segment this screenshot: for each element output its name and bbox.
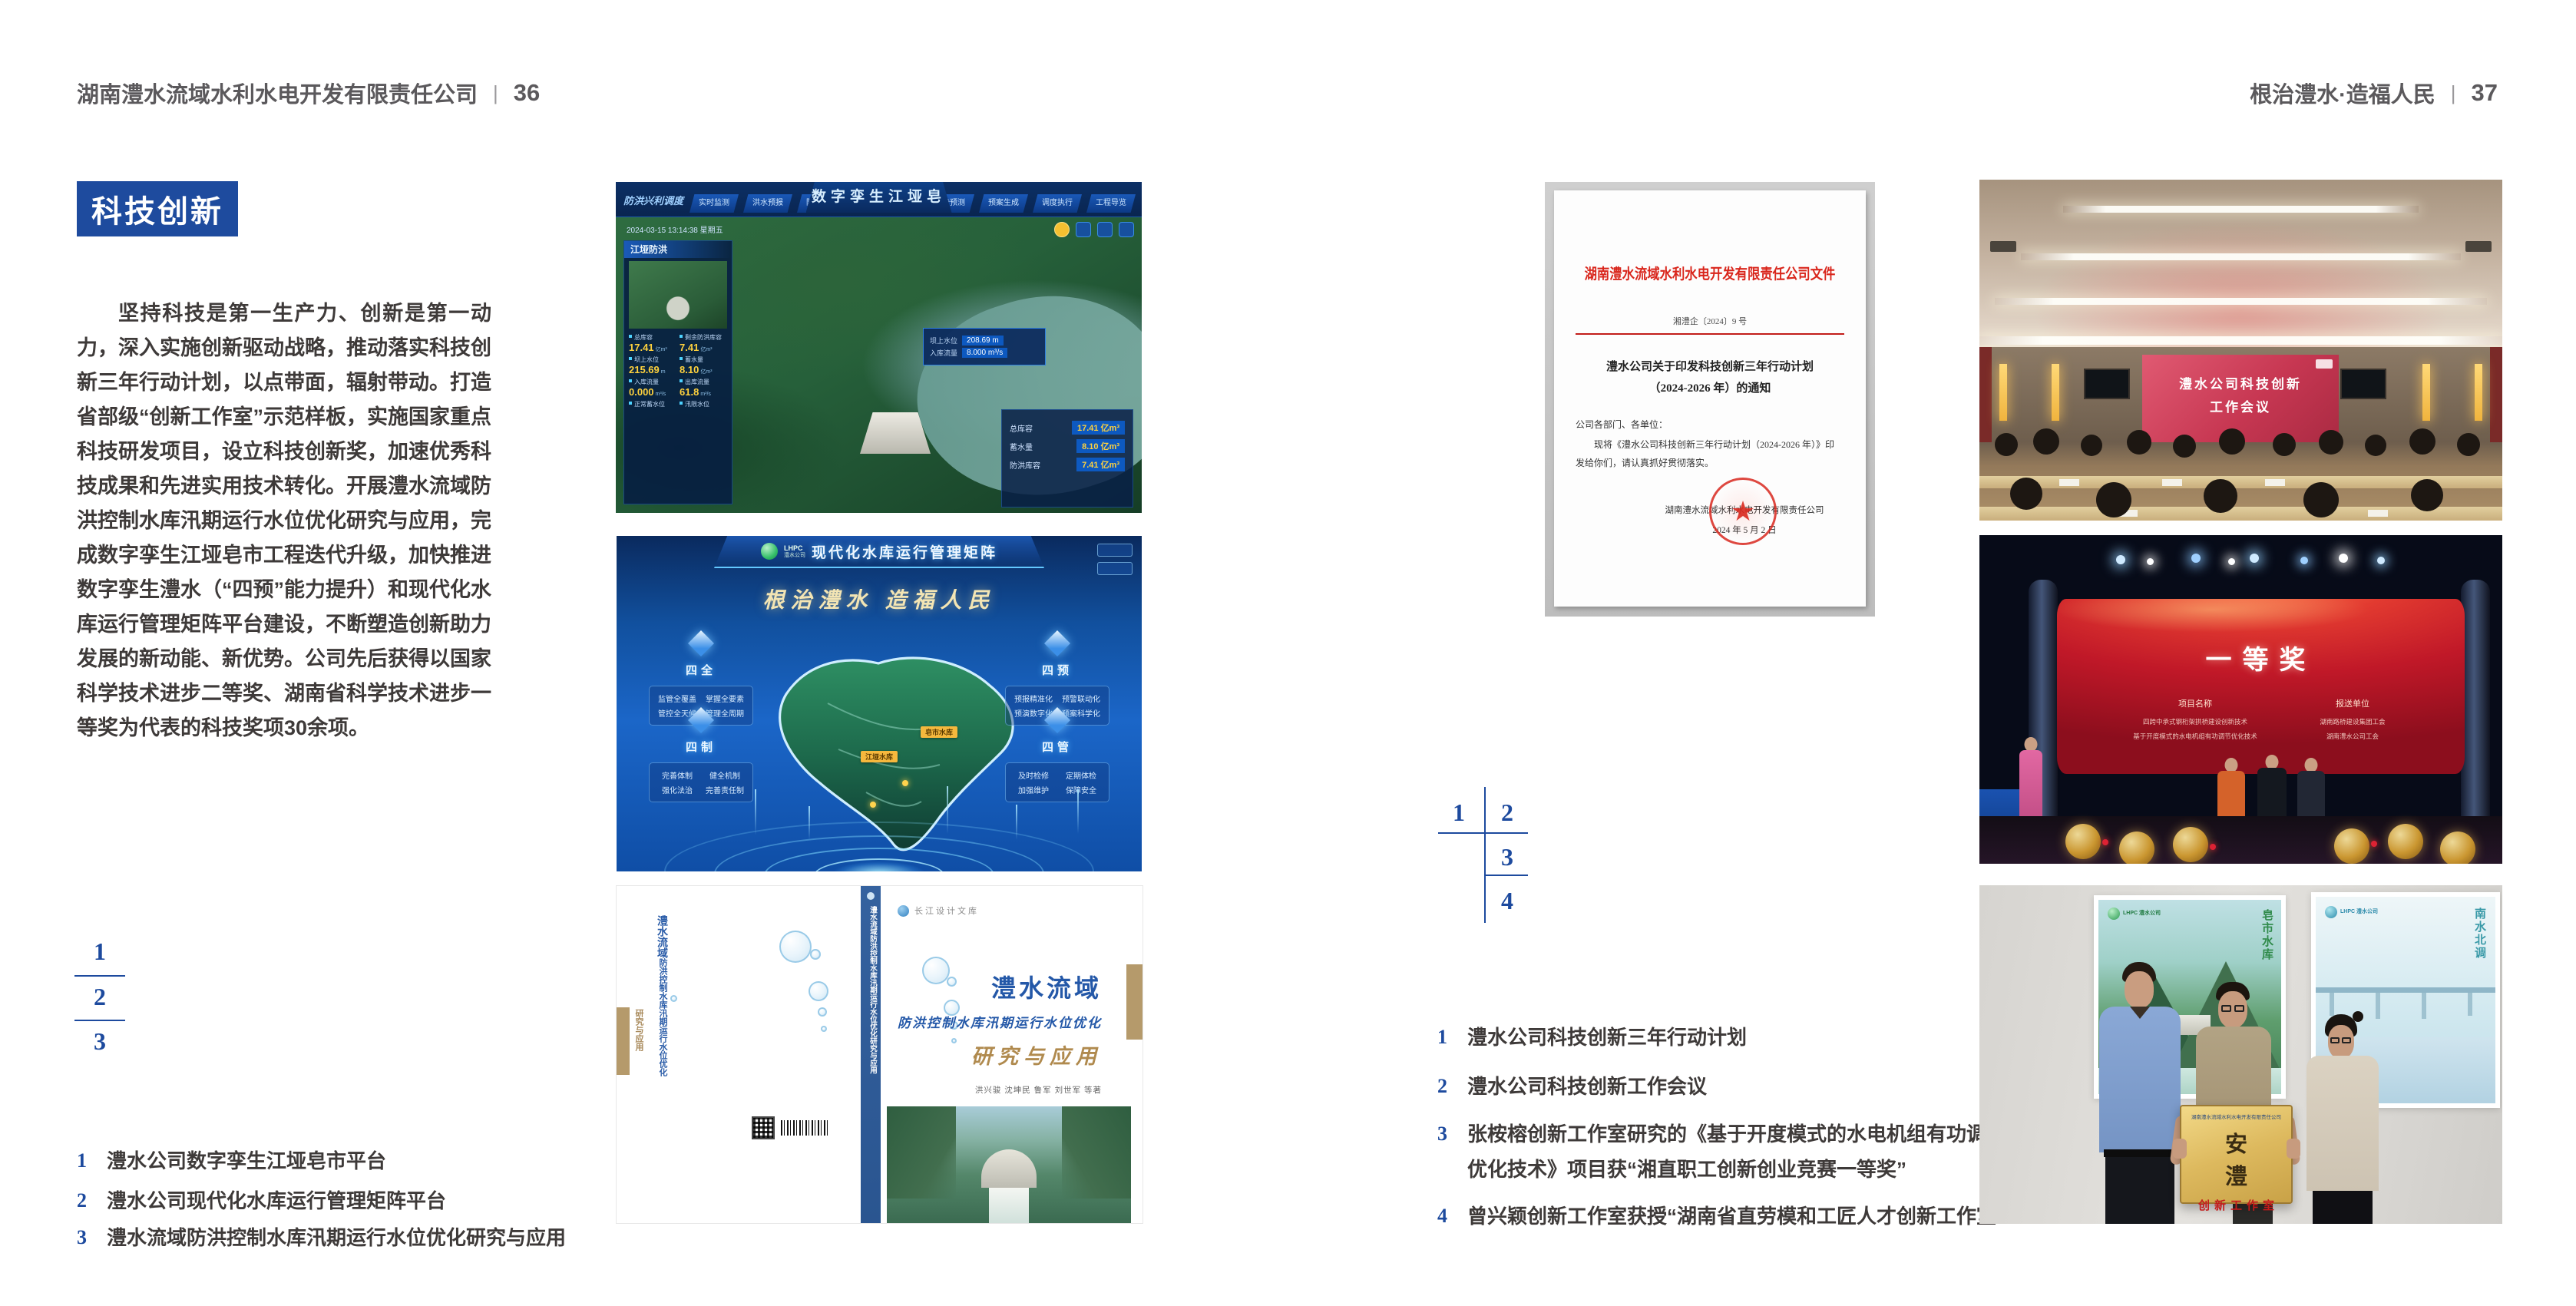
dam-arc <box>981 1149 1037 1188</box>
gold-drum <box>2065 824 2101 859</box>
book-spine: 澧水流域防洪控制水库汛期运行水位优化研究与应用 <box>861 886 881 1223</box>
poster-logo-text: LHPC 澧水公司 <box>2123 911 2161 917</box>
lhpc-logo-icon <box>2325 906 2337 918</box>
stat-cell: 蓄水量8.10亿m³ <box>680 355 727 375</box>
wall-lamp <box>2475 364 2482 421</box>
figure-book-cover: 澧水流域防洪控制水库汛期运行水位优化 研究与应用 澧水流域防洪控制水库汛期运行水… <box>616 885 1143 1224</box>
panel-title: 四制 <box>686 739 716 755</box>
ceiling-light <box>1995 298 2486 305</box>
tab-project-tour: 工程导览 <box>1086 194 1136 213</box>
photo-innovation-studio-group: LHPC 澧水公司 皂市水库 LHPC 澧水公司 南水北调 <box>1979 885 2502 1224</box>
poster-logo: LHPC 澧水公司 <box>2325 906 2378 918</box>
seal-star-icon: ★ <box>1731 495 1755 527</box>
red-ribbon <box>2102 839 2108 845</box>
book-subtitle2: 研究与应用 <box>971 1040 1102 1070</box>
meeting-ceiling <box>1979 180 2502 347</box>
bubble-graphic <box>951 1038 957 1043</box>
tooltip-row: 坝上水位208.69 m <box>930 336 1039 346</box>
bridge-deck <box>2316 987 2495 993</box>
light-streak <box>755 789 756 835</box>
index-grid-hline <box>1484 875 1528 876</box>
man1-shirt <box>2099 1007 2181 1152</box>
stat-cell: 正常蓄水位 <box>629 400 676 408</box>
right-figure-index-4: 4 <box>1488 887 1526 915</box>
document-title-line2: （2024-2026 年）的通知 <box>1554 379 1866 395</box>
audience-head <box>2303 482 2339 517</box>
stat-cell: 出库流量61.8m³/s <box>680 378 727 398</box>
map-label-jiangya: 江垭水库 <box>861 751 898 762</box>
photo-award-ceremony: 一等奖 项目名称 四跨中承式钢桁架拱桥建设创新技术 基于开度模式的水电机组有功调… <box>1979 535 2502 864</box>
dashboard-tabs-right: 态势预测 预案生成 调度执行 工程导览 <box>925 194 1136 213</box>
caption-number: 3 <box>1437 1116 1447 1187</box>
magazine-spread: 湖南澧水流域水利水电开发有限责任公司 | 36 根治澧水·造福人民 | 37 科… <box>0 0 2576 1306</box>
canyon-right <box>1062 1106 1131 1199</box>
man1-belt <box>2104 1149 2176 1157</box>
right-caption-3: 3 张桉榕创新工作室研究的《基于开度模式的水电机组有功调节优化技术》项目获“湘直… <box>1437 1116 2044 1187</box>
user-icon <box>1054 222 1070 237</box>
stat-cell: 汛限水位 <box>680 400 727 408</box>
index-grid-hline <box>1438 832 1528 834</box>
right-figure-index-2: 2 <box>1488 798 1526 827</box>
series-name: 长江设计文库 <box>914 904 979 917</box>
caption-text: 张桉榕创新工作室研究的《基于开度模式的水电机组有功调节优化技术》项目获“湘直职工… <box>1467 1116 2017 1187</box>
tab-realtime-monitoring: 实时监测 <box>689 194 739 213</box>
award-led-screen: 一等奖 项目名称 四跨中承式钢桁架拱桥建设创新技术 基于开度模式的水电机组有功调… <box>2057 599 2465 774</box>
back-cover-subtitle: 研究与应用 <box>633 1009 645 1101</box>
right-caption-1: 1 澧水公司科技创新三年行动计划 <box>1437 1020 1747 1055</box>
dashboard-mode-label: 防洪兴利调度 <box>623 193 683 207</box>
qr-code <box>752 1116 775 1139</box>
bridge-pier <box>2468 993 2472 1016</box>
caption-text: 澧水公司科技创新三年行动计划 <box>1467 1020 1747 1055</box>
figure-management-matrix: LHPC 澧水公司 现代化水库运行管理矩阵 根治澧水 造福人民 皂市水库 江垭水… <box>617 536 1142 871</box>
audience-head <box>2096 482 2131 517</box>
wall-lamp <box>2052 364 2059 421</box>
column-item: 四跨中承式钢桁架拱桥建设创新技术 <box>2118 717 2272 726</box>
book-title: 澧水流域 <box>991 969 1102 1004</box>
dam-photo-thumbnail <box>629 261 727 329</box>
ceiling-light <box>1979 336 2502 345</box>
left-page-header: 湖南澧水流域水利水电开发有限责任公司 | 36 <box>77 77 540 109</box>
stage-spotlight <box>2250 554 2259 563</box>
poster-logo-text: LHPC 澧水公司 <box>2340 909 2378 915</box>
panel-icon <box>1044 707 1070 733</box>
stage-floor <box>1979 816 2502 864</box>
right-header-title: 根治澧水·造福人民 <box>2250 77 2435 109</box>
side-tv-screen <box>2084 369 2130 399</box>
map-point <box>902 780 908 786</box>
audience-head <box>2010 478 2042 510</box>
bubble-graphic <box>947 977 957 987</box>
publisher-logo-icon <box>898 905 909 917</box>
bubble-graphic <box>779 931 812 963</box>
red-wall-panel <box>1979 347 1992 442</box>
right-caption-2: 2 澧水公司科技创新工作会议 <box>1437 1069 1707 1104</box>
document-salutation: 公司各部门、各单位： <box>1576 418 1860 431</box>
book-authors: 洪兴骏 沈坤民 鲁军 刘世军 等著 <box>975 1084 1102 1096</box>
woman-shirt <box>2306 1056 2379 1191</box>
wall-lamp <box>1999 364 2007 421</box>
layers-icon <box>1076 222 1091 237</box>
audience-head <box>2409 428 2435 455</box>
caption-number: 1 <box>77 1143 87 1179</box>
award-column-project: 项目名称 四跨中承式钢桁架拱桥建设创新技术 基于开度模式的水电机组有功调节优化技… <box>2118 697 2272 746</box>
index-divider-line <box>74 1020 125 1021</box>
locate-icon <box>1097 222 1113 237</box>
light-streak <box>1077 789 1079 834</box>
glasses-icon <box>2330 1037 2340 1043</box>
paper-on-desk <box>2265 479 2285 486</box>
audience-head <box>1995 433 2018 456</box>
right-figure-index-1: 1 <box>1440 798 1478 827</box>
woman-hair-bun <box>2353 1011 2363 1022</box>
lhpc-logo-icon <box>2108 908 2120 920</box>
column-item: 基于开度模式的水电机组有功调节优化技术 <box>2118 732 2272 741</box>
hand-on-plaque <box>2173 1139 2187 1159</box>
panel-title: 四预 <box>1042 662 1073 678</box>
wall-lamp <box>2422 364 2430 421</box>
panel-icon <box>688 630 714 656</box>
right-figure-index-3: 3 <box>1488 843 1526 871</box>
column-item: 湖南澧水公司工会 <box>2287 732 2418 741</box>
audience-head <box>2127 430 2151 455</box>
caption-number: 2 <box>1437 1069 1447 1104</box>
logo-acronym: LHPC <box>784 544 805 552</box>
official-seal: ★ <box>1709 478 1777 545</box>
audience-head <box>2219 428 2245 455</box>
screen-button <box>1097 544 1133 557</box>
caption-text: 曾兴颖创新工作室获授“湖南省直劳模和工匠人才创新工作室” <box>1467 1199 2006 1234</box>
photo-innovation-meeting: 澧水公司科技创新 工作会议 <box>1979 180 2502 521</box>
bridge-pier <box>2330 993 2334 1016</box>
light-streak <box>809 806 810 840</box>
plaque-org-line: 湖南澧水流域水利水电开发有限责任公司 <box>2181 1113 2291 1120</box>
document-body-line1: 现将《澧水公司科技创新三年行动计划（2024-2026 年）》印 <box>1576 438 1860 451</box>
company-logo-icon <box>761 543 778 560</box>
stage-spotlight <box>2300 557 2308 564</box>
audience-head <box>2273 433 2296 456</box>
back-cover-accent-bar <box>617 1007 630 1075</box>
front-cover-accent-bar <box>1126 964 1143 1040</box>
caption-text: 澧水公司数字孪生江垭皂市平台 <box>107 1143 386 1179</box>
stage-spotlight <box>2147 558 2154 565</box>
award-column-unit: 报送单位 湖南路桥建设集团工会 湖南澧水公司工会 <box>2287 697 2418 746</box>
ceiling-light <box>2063 206 2419 213</box>
reservoir-info-panel: 江垭防洪 总库容17.41亿m³ 剩余防洪库容7.41亿m³ 坝上水位215.6… <box>623 240 732 504</box>
glasses-icon <box>2342 1037 2351 1043</box>
woman-pants <box>2313 1191 2373 1224</box>
section-title-badge: 科技创新 <box>77 181 238 236</box>
tab-flood-forecast: 洪水预报 <box>743 194 792 213</box>
column-header: 报送单位 <box>2287 697 2418 709</box>
bridge-pier <box>2376 993 2380 1019</box>
bubble-graphic <box>922 957 950 984</box>
caption-text: 澧水公司现代化水库运行管理矩阵平台 <box>107 1183 446 1218</box>
hostess-figure <box>2019 737 2042 822</box>
audience-head <box>2457 433 2480 456</box>
bubble-graphic <box>670 995 677 1002</box>
left-caption-1: 1 澧水公司数字孪生江垭皂市平台 <box>77 1143 386 1179</box>
paper-on-desk <box>2368 510 2388 517</box>
column-item: 湖南路桥建设集团工会 <box>2287 717 2418 726</box>
panel-items: 完善体制健全机制 强化法治完善责任制 <box>649 762 753 802</box>
gold-drum <box>2388 824 2423 859</box>
ceiling-glow <box>1979 180 2502 347</box>
plaque-subtitle: 创新工作室 <box>2181 1197 2291 1213</box>
red-wall-panel <box>2490 347 2502 442</box>
person-body <box>2019 750 2042 822</box>
red-ribbon <box>2210 844 2216 850</box>
spine-logo-icon <box>867 892 875 900</box>
screen-title-line1: 澧水公司科技创新 <box>2142 373 2339 396</box>
map-point <box>870 802 876 808</box>
paper-on-desk <box>2059 479 2079 486</box>
header-divider: | <box>2451 81 2456 105</box>
panel-items: 及时检修定期体检 加强维护保障安全 <box>1005 762 1109 802</box>
right-caption-4: 4 曾兴颖创新工作室获授“湖南省直劳模和工匠人才创新工作室” <box>1437 1199 2006 1234</box>
poster-right-calligraphy: 南水北调 <box>2472 908 2488 960</box>
letterhead-rule <box>1576 333 1844 335</box>
caption-number: 2 <box>77 1183 87 1218</box>
dam-spillway <box>989 1188 1029 1224</box>
caption-number: 3 <box>77 1220 87 1255</box>
stage-spotlight <box>2116 555 2125 564</box>
screen-logo <box>2316 359 2333 369</box>
figure-digital-twin-dashboard: 防洪兴利调度 实时监测 洪水预报 防洪预警 态势预测 预案生成 调度执行 工程导… <box>616 182 1142 513</box>
innovation-studio-plaque: 湖南澧水流域水利水电开发有限责任公司 安 澧 创新工作室 <box>2180 1105 2293 1204</box>
light-streak <box>1016 805 1017 840</box>
ceiling-light <box>2021 253 2460 260</box>
left-figure-index-1: 1 <box>74 937 125 966</box>
book-subtitle: 防洪控制水库汛期运行水位优化 <box>898 1012 1102 1031</box>
index-grid-vline <box>1484 787 1486 923</box>
body-paragraph: 坚持科技是第一生产力、创新是第一动力，深入实施创新驱动战略，推动落实科技创新三年… <box>77 296 491 746</box>
hand-on-plaque <box>2287 1139 2300 1159</box>
light-streak <box>947 786 948 834</box>
glasses-icon <box>2234 1005 2244 1012</box>
bubble-graphic <box>821 1026 827 1032</box>
ac-vent <box>2465 241 2492 252</box>
column-header: 项目名称 <box>2118 697 2272 709</box>
left-caption-2: 2 澧水公司现代化水库运行管理矩阵平台 <box>77 1183 446 1218</box>
man1-pants <box>2105 1157 2174 1224</box>
stat-cell: 坝上水位215.69m <box>629 355 676 375</box>
matrix-panel-guan: 四管 及时检修定期体检 加强维护保障安全 <box>1005 711 1109 802</box>
dashboard-title: 数字孪生江垭皂市 <box>806 182 952 213</box>
right-page-number: 37 <box>2472 79 2498 107</box>
document-title-line1: 澧水公司关于印发科技创新三年行动计划 <box>1554 358 1866 374</box>
plaque-title: 安 澧 <box>2181 1126 2291 1191</box>
document-letterhead: 湖南澧水流域水利水电开发有限责任公司文件 <box>1576 263 1844 283</box>
left-header-title: 湖南澧水流域水利水电开发有限责任公司 <box>77 77 478 109</box>
tab-dispatch-execution: 调度执行 <box>1033 194 1082 213</box>
map-tooltip: 坝上水位208.69 m 入库流量8.000 m³/s <box>923 328 1046 365</box>
logo-text: LHPC 澧水公司 <box>784 544 805 559</box>
gold-drum <box>2440 832 2475 864</box>
caption-number: 1 <box>1437 1020 1447 1055</box>
matrix-panel-zhi: 四制 完善体制健全机制 强化法治完善责任制 <box>649 711 753 802</box>
logo-company: 澧水公司 <box>784 552 805 559</box>
gold-drum <box>2173 827 2208 862</box>
glasses-icon <box>2221 1005 2231 1012</box>
caption-number: 4 <box>1437 1199 1447 1234</box>
stage-spotlight <box>2339 554 2348 563</box>
menu-button <box>1097 562 1133 575</box>
tab-plan-generation: 预案生成 <box>979 194 1028 213</box>
panel-title: 四管 <box>1042 739 1073 755</box>
stat-cell: 入库流量0.000m³/s <box>629 378 676 398</box>
man1-face <box>2125 971 2154 1008</box>
audience-head <box>2033 428 2059 455</box>
stage-spotlight <box>2228 558 2235 565</box>
matrix-title: 现代化水库运行管理矩阵 <box>812 541 997 562</box>
document-body-line2: 发给你们，请认真抓好贯彻落实。 <box>1576 456 1860 469</box>
document-paper: 湖南澧水流域水利水电开发有限责任公司文件 湘澧企〔2024〕9 号 澧水公司关于… <box>1554 190 1866 607</box>
matrix-header: LHPC 澧水公司 现代化水库运行管理矩阵 <box>714 536 1044 568</box>
poster-left-calligraphy: 皂市水库 <box>2259 909 2275 961</box>
reservoir-stats: 总库容17.41亿m³ 剩余防洪库容7.41亿m³ 坝上水位215.69m 蓄水… <box>624 332 732 410</box>
stage-spotlight <box>2191 554 2201 563</box>
paper-on-desk <box>2162 479 2182 486</box>
panel-icon <box>688 707 714 733</box>
audience-head <box>2365 435 2386 456</box>
caption-text: 澧水公司科技创新工作会议 <box>1467 1069 1707 1104</box>
panel-title: 四全 <box>686 662 716 678</box>
stage-spotlight <box>2377 557 2385 564</box>
matrix-slogan: 根治澧水 造福人民 <box>617 584 1142 614</box>
bridge-pier <box>2422 993 2426 1019</box>
bubble-graphic <box>809 981 828 1001</box>
panel-title: 江垭防洪 <box>624 241 732 258</box>
barcode <box>781 1120 828 1136</box>
settings-icon <box>1119 222 1134 237</box>
left-page-number: 36 <box>514 79 540 107</box>
side-panel-row: 总库容17.41 亿m³ <box>1010 421 1125 435</box>
index-divider-line <box>74 975 125 977</box>
audience-head <box>2081 435 2102 456</box>
figure-official-document: 湖南澧水流域水利水电开发有限责任公司文件 湘澧企〔2024〕9 号 澧水公司关于… <box>1545 182 1875 617</box>
panel-icon <box>1044 630 1070 656</box>
audience-head <box>2204 479 2237 513</box>
tooltip-row: 入库流量8.000 m³/s <box>930 348 1039 358</box>
left-figure-index-2: 2 <box>74 983 125 1011</box>
caption-text: 澧水流域防洪控制水库汛期运行水位优化研究与应用 <box>107 1220 566 1255</box>
canyon-left <box>887 1106 956 1199</box>
screen-title-line2: 工作会议 <box>2142 396 2339 419</box>
dashboard-toolbar <box>1054 222 1134 237</box>
left-figure-index-3: 3 <box>74 1027 125 1056</box>
audience-head <box>2411 479 2443 511</box>
award-title: 一等奖 <box>2057 639 2465 676</box>
document-number: 湘澧企〔2024〕9 号 <box>1554 315 1866 327</box>
bubble-graphic <box>818 1007 827 1017</box>
capacity-side-panel: 总库容17.41 亿m³ 蓄水量8.10 亿m³ 防洪库容7.41 亿m³ <box>1001 409 1133 508</box>
audience-head <box>2173 435 2196 458</box>
side-tv-screen <box>2340 369 2386 399</box>
spine-title: 澧水流域防洪控制水库汛期运行水位优化研究与应用 <box>867 906 878 1213</box>
stat-cell: 总库容17.41亿m³ <box>629 333 676 353</box>
gold-drum <box>2334 828 2369 864</box>
map-label-zaoshi: 皂市水库 <box>921 726 957 738</box>
side-panel-row: 蓄水量8.10 亿m³ <box>1010 439 1125 453</box>
poster-logo: LHPC 澧水公司 <box>2108 908 2161 920</box>
back-cover-title: 澧水流域防洪控制水库汛期运行水位优化 <box>655 915 670 1122</box>
left-caption-3: 3 澧水流域防洪控制水库汛期运行水位优化研究与应用 <box>77 1220 566 1255</box>
right-page-header: 根治澧水·造福人民 | 37 <box>2250 77 2498 109</box>
bubble-graphic <box>810 949 821 960</box>
stat-cell: 剩余防洪库容7.41亿m³ <box>680 333 727 353</box>
red-ribbon <box>2371 841 2377 847</box>
header-divider: | <box>493 81 498 105</box>
dashboard-timestamp: 2024-03-15 13:14:38 星期五 <box>627 223 723 235</box>
cover-dam-photo <box>887 1106 1131 1224</box>
series-logo: 长江设计文库 <box>898 904 979 917</box>
ac-vent <box>1990 241 2016 252</box>
gold-drum <box>2119 832 2154 864</box>
audience-head <box>2319 430 2343 455</box>
side-panel-row: 防洪库容7.41 亿m³ <box>1010 458 1125 471</box>
